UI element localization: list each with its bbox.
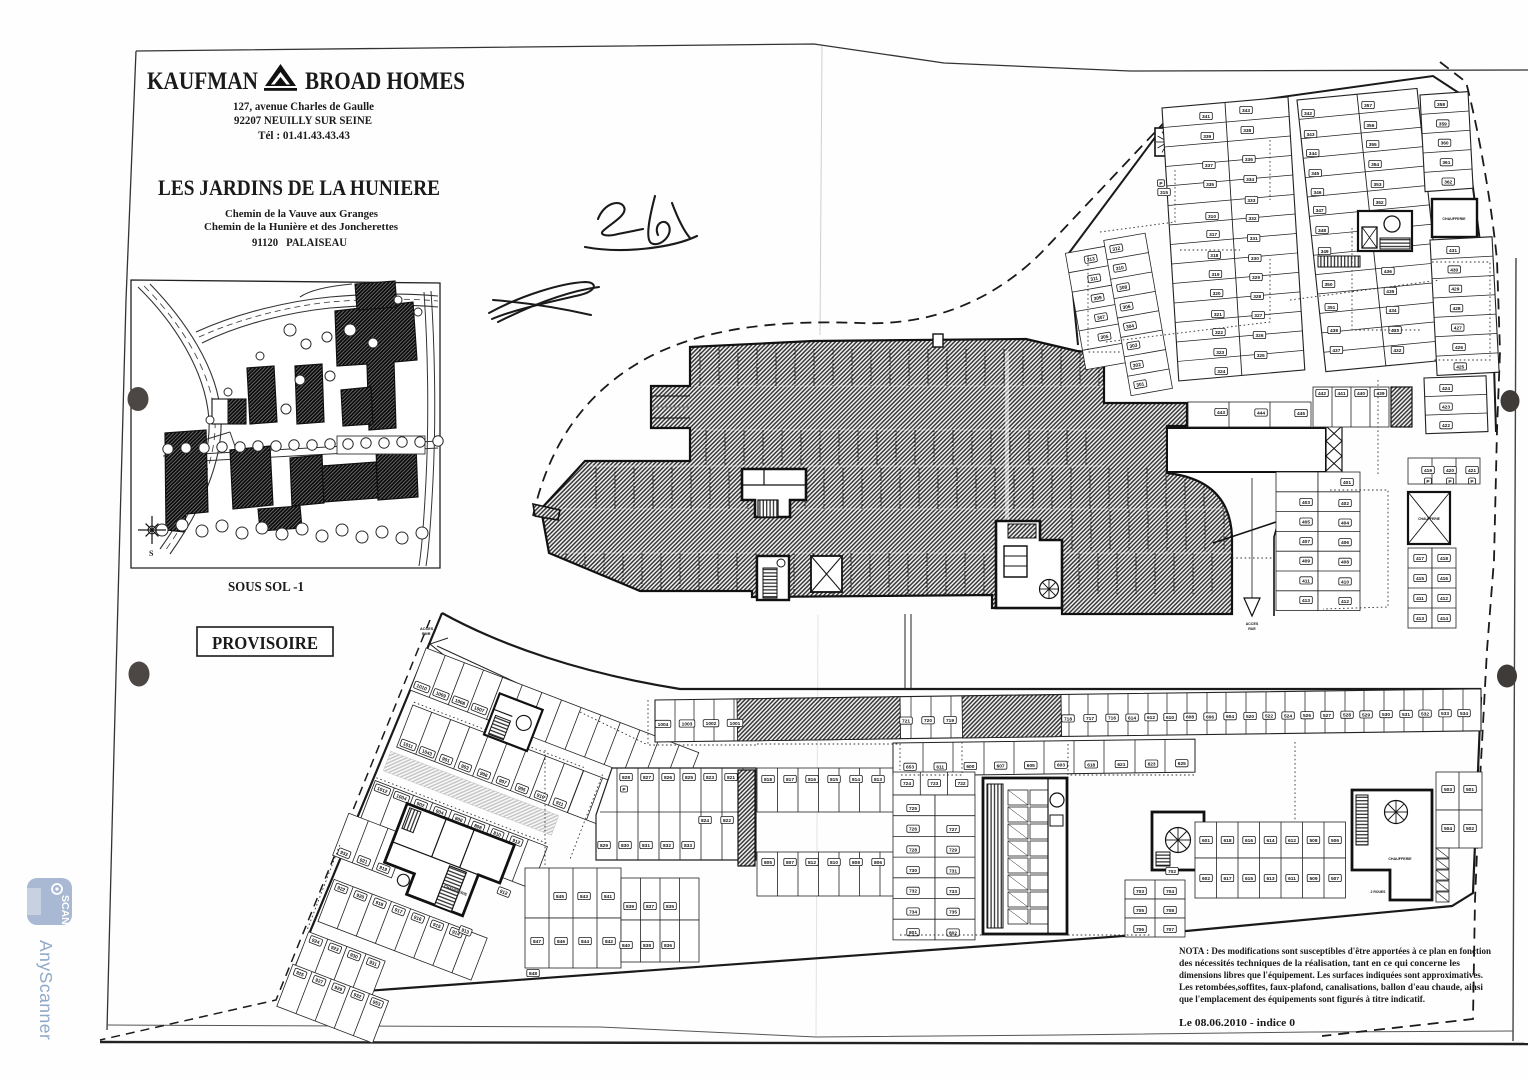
svg-text:445: 445 [1297, 411, 1305, 417]
svg-text:618: 618 [1087, 762, 1095, 768]
svg-text:344: 344 [1309, 151, 1317, 157]
svg-text:605: 605 [1027, 763, 1035, 769]
svg-text:805: 805 [764, 860, 772, 866]
svg-text:413: 413 [1416, 616, 1424, 622]
svg-text:324: 324 [1217, 369, 1225, 375]
svg-text:612: 612 [1147, 715, 1155, 721]
svg-text:721: 721 [902, 719, 910, 725]
svg-text:817: 817 [786, 777, 794, 783]
svg-text:357: 357 [1364, 103, 1372, 109]
svg-text:522: 522 [1265, 714, 1273, 720]
svg-text:613: 613 [1266, 876, 1274, 882]
svg-text:ACCES: ACCES [420, 627, 434, 631]
svg-text:LES JARDINS DE LA HUNIERE: LES JARDINS DE LA HUNIERE [158, 175, 440, 200]
svg-text:623: 623 [1148, 762, 1156, 768]
svg-text:845: 845 [556, 894, 564, 900]
svg-text:614: 614 [1266, 838, 1274, 844]
svg-text:534: 534 [1460, 711, 1468, 717]
svg-text:332: 332 [1248, 216, 1256, 222]
svg-text:724: 724 [903, 781, 911, 787]
svg-text:846: 846 [557, 939, 565, 945]
svg-text:835: 835 [666, 904, 674, 910]
svg-text:408: 408 [1341, 560, 1349, 566]
svg-text:345: 345 [1311, 171, 1319, 177]
svg-text:722: 722 [958, 781, 966, 787]
svg-text:530: 530 [1382, 712, 1390, 718]
svg-text:810: 810 [830, 860, 838, 866]
svg-text:417: 417 [1416, 556, 1424, 562]
svg-text:317: 317 [1209, 232, 1217, 238]
svg-text:328: 328 [1253, 294, 1261, 300]
svg-text:607: 607 [997, 764, 1005, 770]
svg-text:603: 603 [1057, 763, 1065, 769]
svg-text:Chemin de la Vauve aux Granges: Chemin de la Vauve aux Granges [225, 208, 379, 220]
svg-text:que l'emplacement des équipeme: que l'emplacement des équipements sont f… [1179, 995, 1425, 1005]
svg-text:418: 418 [1440, 556, 1448, 562]
svg-text:CHAUFFERIE: CHAUFFERIE [1388, 857, 1412, 861]
svg-text:815: 815 [830, 777, 838, 783]
svg-text:BROAD HOMES: BROAD HOMES [305, 68, 465, 95]
svg-text:847: 847 [533, 939, 541, 945]
svg-text:718: 718 [1064, 716, 1072, 722]
svg-text:507: 507 [1331, 876, 1339, 882]
svg-text:416: 416 [1440, 576, 1448, 582]
svg-text:CHAUFFERIE: CHAUFFERIE [1418, 517, 1441, 521]
svg-text:501: 501 [1466, 787, 1474, 793]
svg-text:411: 411 [1302, 578, 1310, 584]
svg-text:502: 502 [1466, 826, 1474, 832]
svg-text:353: 353 [1373, 182, 1381, 188]
svg-text:826: 826 [664, 775, 672, 781]
svg-text:438: 438 [1330, 328, 1338, 334]
svg-text:806: 806 [874, 860, 882, 866]
svg-text:333: 333 [1247, 198, 1255, 204]
svg-text:726: 726 [909, 827, 917, 833]
svg-text:437: 437 [1332, 348, 1340, 354]
svg-text:808: 808 [852, 860, 860, 866]
svg-text:618: 618 [1223, 838, 1231, 844]
svg-text:611: 611 [936, 764, 944, 770]
svg-text:832: 832 [663, 843, 671, 849]
svg-text:356: 356 [1366, 123, 1374, 129]
svg-text:423: 423 [1442, 405, 1450, 411]
svg-text:825: 825 [685, 775, 693, 781]
svg-text:723: 723 [930, 781, 938, 787]
svg-text:318: 318 [1210, 253, 1218, 259]
svg-text:310: 310 [1208, 214, 1216, 220]
svg-text:415: 415 [1416, 576, 1424, 582]
svg-text:841: 841 [604, 894, 612, 900]
svg-text:600: 600 [966, 764, 974, 770]
svg-text:322: 322 [1215, 330, 1223, 336]
svg-text:735: 735 [949, 910, 957, 916]
svg-text:402: 402 [1341, 501, 1349, 507]
svg-text:520: 520 [1246, 714, 1254, 720]
svg-text:717: 717 [1086, 716, 1094, 722]
svg-text:2 ROUES: 2 ROUES [1371, 890, 1387, 894]
svg-text:362: 362 [1444, 180, 1452, 186]
svg-text:719: 719 [946, 718, 954, 724]
svg-text:404: 404 [1341, 521, 1349, 527]
svg-text:343: 343 [1242, 108, 1250, 114]
svg-text:822: 822 [723, 818, 731, 824]
svg-text:348: 348 [1318, 228, 1326, 234]
svg-text:428: 428 [1453, 306, 1461, 312]
svg-text:733: 733 [949, 889, 957, 895]
svg-text:506: 506 [1331, 838, 1339, 844]
svg-text:1001: 1001 [730, 721, 741, 727]
svg-text:334: 334 [1246, 177, 1254, 183]
svg-text:403: 403 [1302, 500, 1310, 506]
svg-text:617: 617 [1223, 876, 1231, 882]
svg-text:342: 342 [1304, 111, 1312, 117]
svg-text:des nécessités techniques de l: des nécessités techniques de la réalisat… [1179, 959, 1460, 969]
svg-text:347: 347 [1316, 208, 1324, 214]
svg-text:503: 503 [1444, 787, 1452, 793]
svg-text:434: 434 [1389, 308, 1397, 314]
svg-text:830: 830 [621, 843, 629, 849]
svg-text:813: 813 [874, 777, 882, 783]
svg-text:SOUS SOL -1: SOUS SOL -1 [228, 579, 304, 594]
svg-text:840: 840 [622, 943, 630, 949]
svg-text:401: 401 [1343, 480, 1351, 486]
svg-text:807: 807 [786, 860, 794, 866]
svg-text:716: 716 [1108, 716, 1116, 722]
svg-text:411: 411 [1416, 596, 1424, 602]
svg-text:509: 509 [1309, 876, 1317, 882]
svg-text:331: 331 [1250, 236, 1258, 242]
svg-text:831: 831 [642, 843, 650, 849]
svg-text:429: 429 [1451, 287, 1459, 293]
svg-text:532: 532 [1421, 712, 1429, 718]
svg-text:412: 412 [1440, 596, 1448, 602]
svg-text:327: 327 [1254, 313, 1262, 319]
svg-text:729: 729 [949, 848, 957, 854]
svg-text:Le 08.06.2010 - indice 0: Le 08.06.2010 - indice 0 [1179, 1018, 1295, 1029]
svg-text:702: 702 [1168, 869, 1176, 875]
svg-text:425: 425 [1456, 364, 1464, 370]
svg-text:707: 707 [1166, 927, 1174, 933]
svg-text:409: 409 [1302, 559, 1310, 565]
svg-text:653: 653 [906, 765, 914, 771]
svg-text:836: 836 [664, 943, 672, 949]
svg-text:329: 329 [1252, 275, 1260, 281]
svg-text:430: 430 [1450, 267, 1458, 273]
svg-text:330: 330 [1251, 256, 1259, 262]
svg-text:816: 816 [808, 777, 816, 783]
svg-text:421: 421 [1468, 468, 1476, 474]
svg-text:325: 325 [1257, 353, 1265, 359]
svg-text:414: 414 [1440, 616, 1448, 622]
svg-text:361: 361 [1442, 160, 1450, 166]
svg-text:435: 435 [1386, 289, 1394, 295]
svg-text:504: 504 [1444, 826, 1452, 832]
svg-text:320: 320 [1213, 291, 1221, 297]
svg-text:422: 422 [1442, 423, 1450, 429]
svg-text:92207 NEUILLY SUR SEINE: 92207 NEUILLY SUR SEINE [234, 113, 372, 127]
svg-text:705: 705 [1136, 908, 1144, 914]
svg-text:319: 319 [1211, 272, 1219, 278]
svg-text:443: 443 [1217, 410, 1225, 416]
svg-text:608: 608 [1186, 715, 1194, 721]
svg-text:528: 528 [1343, 713, 1351, 719]
svg-text:359: 359 [1439, 121, 1447, 127]
svg-text:838: 838 [643, 943, 651, 949]
svg-text:315: 315 [1160, 190, 1168, 196]
svg-text:349: 349 [1321, 249, 1329, 255]
svg-text:621: 621 [1117, 762, 1125, 768]
svg-text:351: 351 [1327, 305, 1335, 311]
svg-text:339: 339 [1203, 134, 1211, 140]
svg-text:358: 358 [1437, 102, 1445, 108]
svg-text:410: 410 [1341, 579, 1349, 585]
svg-text:323: 323 [1216, 350, 1224, 356]
svg-text:ACCES: ACCES [1246, 622, 1259, 626]
svg-text:RUE: RUE [1248, 627, 1256, 631]
svg-text:823: 823 [706, 775, 714, 781]
svg-text:355: 355 [1369, 142, 1377, 148]
svg-text:829: 829 [600, 843, 608, 849]
svg-text:611: 611 [1288, 876, 1296, 882]
svg-text:606: 606 [1206, 714, 1214, 720]
svg-text:802: 802 [949, 930, 957, 936]
svg-text:337: 337 [1205, 163, 1213, 169]
svg-text:431: 431 [1449, 248, 1457, 254]
svg-text:91120 PALAISEAU: 91120 PALAISEAU [252, 235, 347, 249]
svg-text:427: 427 [1454, 326, 1462, 332]
svg-text:730: 730 [909, 868, 917, 874]
svg-text:412: 412 [1341, 599, 1349, 605]
svg-text:335: 335 [1206, 182, 1214, 188]
svg-text:PMR: PMR [422, 632, 431, 636]
svg-text:734: 734 [909, 909, 917, 915]
svg-text:436: 436 [1384, 269, 1392, 275]
svg-text:533: 533 [1441, 711, 1449, 717]
svg-text:420: 420 [1446, 468, 1454, 474]
svg-text:Tél : 01.41.43.43.43: Tél : 01.41.43.43.43 [258, 130, 350, 142]
svg-text:839: 839 [626, 904, 634, 910]
svg-text:432: 432 [1393, 348, 1401, 354]
svg-text:728: 728 [909, 847, 917, 853]
svg-text:602: 602 [1202, 876, 1210, 882]
svg-text:343: 343 [1306, 132, 1314, 138]
svg-text:524: 524 [1284, 713, 1292, 719]
svg-text:321: 321 [1214, 312, 1222, 318]
svg-text:833: 833 [684, 843, 692, 849]
svg-text:350: 350 [1324, 282, 1332, 288]
svg-text:616: 616 [1245, 838, 1253, 844]
svg-text:703: 703 [1136, 889, 1144, 895]
svg-text:814: 814 [852, 777, 860, 783]
svg-text:529: 529 [1362, 712, 1370, 718]
svg-text:PROVISOIRE: PROVISOIRE [212, 633, 318, 653]
svg-text:413: 413 [1302, 598, 1310, 604]
svg-text:433: 433 [1391, 328, 1399, 334]
svg-text:732: 732 [909, 889, 917, 895]
svg-text:842: 842 [605, 939, 613, 945]
svg-text:NOTA : Des modifications sont: NOTA : Des modifications sont susceptibl… [1179, 947, 1492, 957]
svg-text:725: 725 [909, 806, 917, 812]
svg-text:SCAN: SCAN [59, 895, 71, 925]
svg-text:601: 601 [1202, 838, 1210, 844]
svg-text:1002: 1002 [706, 721, 717, 727]
svg-text:614: 614 [1128, 716, 1136, 722]
svg-text:406: 406 [1341, 540, 1349, 546]
svg-text:824: 824 [701, 818, 709, 824]
svg-text:615: 615 [1245, 876, 1253, 882]
svg-text:dimensions libres que l'équipe: dimensions libres que l'équipement. Les … [1179, 971, 1483, 981]
svg-text:821: 821 [727, 775, 735, 781]
svg-text:326: 326 [1255, 333, 1263, 339]
svg-text:1003: 1003 [682, 721, 693, 727]
svg-text:Chemin de la Hunière et des Jo: Chemin de la Hunière et des Joncherettes [204, 221, 399, 233]
svg-text:610: 610 [1166, 715, 1174, 721]
svg-text:Les retombées,soffites, faux-p: Les retombées,soffites, faux-plafond, ca… [1179, 983, 1483, 993]
svg-text:818: 818 [764, 777, 772, 783]
svg-text:720: 720 [924, 718, 932, 724]
svg-text:531: 531 [1402, 712, 1410, 718]
svg-text:828: 828 [622, 775, 630, 781]
svg-text:848: 848 [529, 971, 537, 977]
svg-text:625: 625 [1178, 761, 1186, 767]
svg-text:1004: 1004 [658, 722, 669, 728]
svg-text:526: 526 [1303, 713, 1311, 719]
svg-text:612: 612 [1288, 838, 1296, 844]
svg-text:336: 336 [1245, 157, 1253, 163]
svg-text:127, avenue Charles de Gaulle: 127, avenue Charles de Gaulle [233, 101, 374, 113]
svg-text:CHAUFFERIE: CHAUFFERIE [1442, 217, 1466, 221]
svg-text:527: 527 [1323, 713, 1331, 719]
svg-text:405: 405 [1302, 520, 1310, 526]
svg-text:844: 844 [581, 939, 589, 945]
svg-text:812: 812 [808, 860, 816, 866]
svg-text:604: 604 [1226, 714, 1234, 720]
svg-text:419: 419 [1424, 468, 1432, 474]
svg-text:S: S [149, 549, 154, 558]
svg-text:407: 407 [1302, 539, 1310, 545]
svg-text:731: 731 [949, 868, 957, 874]
svg-text:444: 444 [1257, 410, 1265, 416]
svg-text:KAUFMAN: KAUFMAN [147, 68, 258, 95]
svg-text:360: 360 [1441, 141, 1449, 147]
svg-text:354: 354 [1371, 162, 1379, 168]
svg-text:426: 426 [1455, 345, 1463, 351]
svg-text:AnyScanner: AnyScanner [36, 940, 56, 1040]
svg-text:704: 704 [1166, 889, 1174, 895]
svg-text:346: 346 [1313, 190, 1321, 196]
svg-text:341: 341 [1202, 114, 1210, 120]
svg-text:827: 827 [643, 775, 651, 781]
svg-text:441: 441 [1337, 391, 1345, 397]
svg-text:338: 338 [1243, 128, 1251, 134]
svg-text:727: 727 [949, 827, 957, 833]
svg-text:442: 442 [1318, 391, 1326, 397]
svg-text:508: 508 [1309, 838, 1317, 844]
svg-text:708: 708 [1166, 908, 1174, 914]
svg-text:440: 440 [1357, 391, 1365, 397]
svg-text:424: 424 [1442, 386, 1450, 392]
svg-text:843: 843 [580, 894, 588, 900]
svg-text:706: 706 [1136, 927, 1144, 933]
svg-text:837: 837 [646, 904, 654, 910]
svg-text:352: 352 [1376, 200, 1384, 206]
